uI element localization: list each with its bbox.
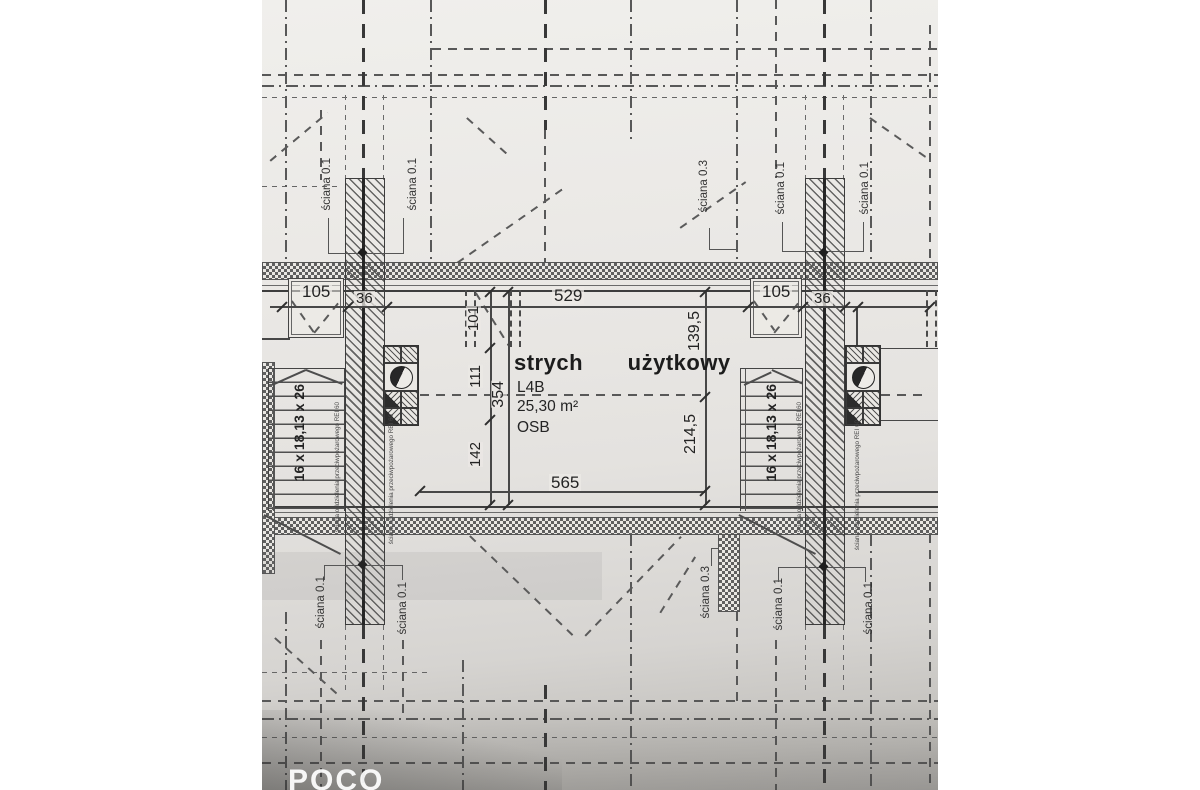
roof-projection-line (775, 0, 777, 178)
roof-hip-line (870, 117, 931, 160)
chimney-flue-cell (863, 346, 880, 363)
structural-axis-line (544, 0, 547, 130)
chimney-flue-circle-icon (390, 366, 413, 389)
opening-101-jamb (510, 290, 521, 347)
stair-spec-left: 16 x 18,13 x 26 (292, 384, 306, 481)
neighbour-opening-jamb (926, 290, 937, 347)
dim-label-142: 142 (468, 442, 483, 467)
dim-label-139-5: 139,5 (687, 311, 703, 351)
party-wall-axis (362, 0, 365, 178)
label-leader (709, 228, 736, 250)
wall-03-axis (736, 612, 738, 702)
wall-edge-line (262, 338, 290, 340)
wall-label-01: ściana 0.1 (322, 158, 334, 210)
chimney-flue-cell (401, 346, 418, 363)
wall-label-03: ściana 0.3 (699, 160, 711, 212)
chimney-flue-cell (846, 346, 863, 363)
roof-hip-line (466, 117, 509, 156)
roof-hip-line (274, 637, 337, 694)
stair-spec-right: 16 x 18,13 x 26 (764, 384, 778, 481)
page: 105 105 36 36 529 565 101 111 142 354 13… (0, 0, 1200, 790)
drawing-layer: 105 105 36 36 529 565 101 111 142 354 13… (262, 0, 938, 790)
structural-axis-line (430, 0, 432, 263)
roof-projection-line (544, 130, 546, 263)
stair-stringer-line (745, 369, 746, 511)
roof-hip-line (457, 185, 568, 263)
chimney-flue-cell (384, 346, 401, 363)
fire-wall-label: ściana oddzielenia przeciwpożarowego REI… (855, 420, 861, 550)
chimney-flue-cell (401, 391, 418, 408)
dim-label-36-right: 36 (812, 291, 833, 306)
wall-face-projection (383, 625, 384, 690)
paper-shadow (262, 552, 602, 600)
dim-line-vertical (508, 292, 510, 505)
fire-wall-label: ściana oddzielenia przeciwpożarowego REI… (389, 414, 395, 544)
wall-face-projection (383, 95, 384, 178)
wall-face-projection (843, 95, 844, 178)
wall-label-01: ściana 0.1 (776, 162, 788, 214)
wall-label-03: ściana 0.3 (701, 566, 713, 618)
chimney-flue-cell (846, 391, 863, 408)
party-wall-axis (823, 0, 826, 178)
dim-label-111: 111 (468, 365, 483, 388)
wall-face-projection (843, 625, 844, 690)
chimney-flue-cell (863, 408, 880, 425)
dim-label-101: 101 (466, 306, 481, 331)
wall-03-axis (736, 0, 738, 263)
chimney-right (845, 345, 881, 426)
room-unit: L4B (517, 379, 545, 397)
dim-label-354: 354 (491, 381, 507, 408)
roof-hip-line (659, 556, 695, 613)
dim-label-565: 565 (549, 474, 581, 491)
dim-label-105-right: 105 (760, 283, 792, 300)
wall-label-01: ściana 0.1 (774, 578, 786, 630)
structural-axis-line (870, 0, 872, 263)
neighbour-room-line (858, 491, 938, 493)
wall-03-stub (718, 534, 740, 612)
chimney-flue-circle-icon (852, 366, 875, 389)
room-area: 25,30 m² (517, 398, 578, 416)
structural-axis-line (285, 0, 287, 263)
wall-face-projection (805, 625, 806, 690)
knee-wall-dashed-line (420, 394, 704, 396)
wall-label-01: ściana 0.1 (860, 162, 872, 214)
roof-overhang-line (262, 672, 432, 673)
fire-wall-label: ściana oddzielenia przeciwpożarowego REI… (335, 402, 341, 532)
chimney-flue-cell (863, 391, 880, 408)
wall-face-projection (345, 625, 346, 690)
neighbour-room-outline (878, 348, 938, 421)
dim-line-vertical (705, 292, 707, 505)
room-floor: OSB (517, 419, 550, 437)
camera-watermark: POCO (288, 764, 384, 790)
structural-axis-line (630, 0, 632, 140)
wall-label-01: ściana 0.1 (408, 158, 420, 210)
chimney-circle-cell (384, 363, 418, 391)
fire-wall-label: ściana oddzielenia przeciwpożarowego REI… (797, 402, 803, 532)
floorplan-photo: 105 105 36 36 529 565 101 111 142 354 13… (262, 0, 938, 790)
wall-label-01: ściana 0.1 (864, 582, 876, 634)
label-leader (711, 548, 718, 566)
dim-label-529: 529 (552, 287, 584, 304)
dim-label-36-left: 36 (354, 291, 375, 306)
wall-face-projection (805, 95, 806, 178)
chimney-flue-cell (401, 408, 418, 425)
room-title: strych użytkowy (514, 350, 731, 376)
neighbour-wall-line (856, 307, 858, 348)
stair-stringer-line (273, 369, 274, 511)
wall-face-projection (345, 95, 346, 178)
roof-projection-line (929, 25, 931, 263)
chimney-circle-cell (846, 363, 880, 391)
label-leader (328, 218, 404, 254)
chimney-flue-cell (384, 391, 401, 408)
dim-label-214-5: 214,5 (683, 414, 699, 454)
roof-overhang-line (432, 48, 938, 50)
dim-label-105-left: 105 (300, 283, 332, 300)
